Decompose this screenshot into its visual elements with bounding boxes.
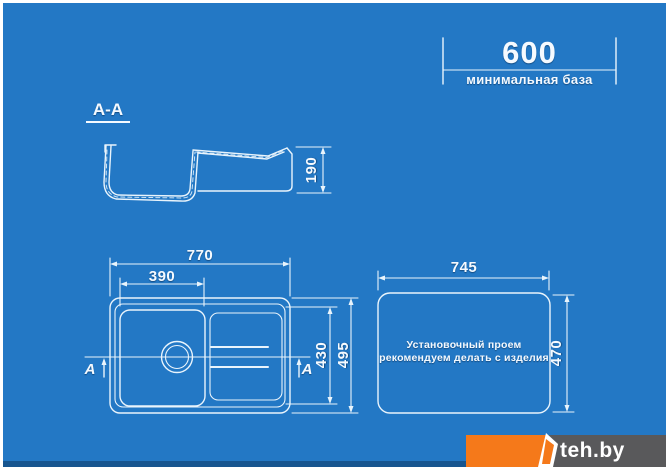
sink-rim-inner-edge — [115, 304, 285, 407]
plan-view — [85, 298, 310, 413]
cutout-width-value: 745 — [414, 259, 514, 276]
cut-marker-right: А — [297, 361, 317, 378]
sink-outer-edge — [110, 298, 290, 413]
section-label: А-А — [86, 100, 130, 123]
cutout-note-line2: рекомендуем делать с изделия — [374, 352, 554, 364]
overall-width-value: 770 — [150, 247, 250, 264]
base-dimension-value: 600 — [443, 35, 616, 71]
cut-marker-left: А — [80, 361, 100, 378]
bowl-width-value: 390 — [112, 268, 212, 285]
product-drawing-image: 600 минимальная база А-А 190 770 390 430… — [0, 0, 670, 471]
section-profile — [104, 145, 292, 201]
base-dimension-caption: минимальная база — [443, 72, 616, 87]
section-depth-value: 190 — [297, 154, 325, 186]
overall-depth-value: 495 — [329, 339, 357, 371]
cutout-note-line1: Установочный проем — [384, 339, 544, 351]
logo-brand-text: teh.by — [560, 435, 625, 467]
tehby-flame-icon — [533, 431, 561, 471]
